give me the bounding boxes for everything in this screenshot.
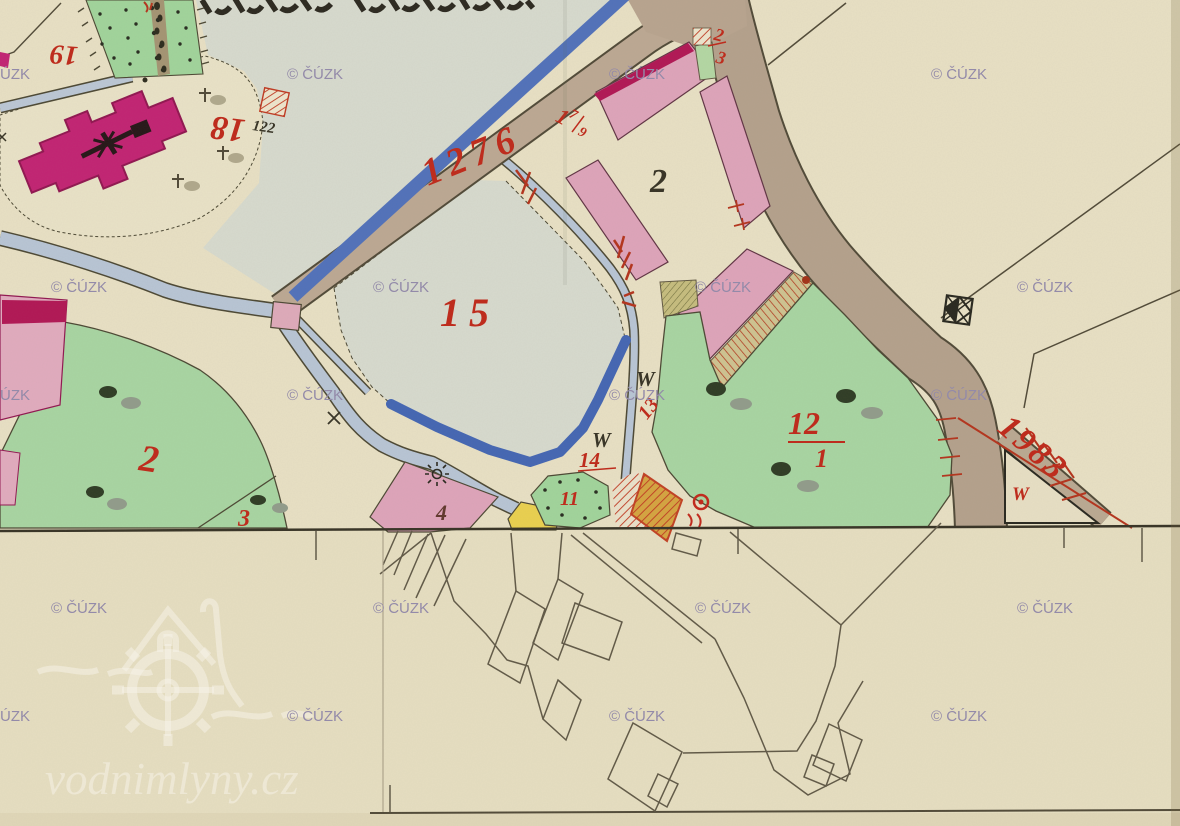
svg-text:© ČÚZK: © ČÚZK xyxy=(51,600,107,617)
svg-text:© ČÚZK: © ČÚZK xyxy=(609,387,665,404)
svg-text:© ČÚZK: © ČÚZK xyxy=(1017,600,1073,617)
svg-text:© ČÚZK: © ČÚZK xyxy=(931,708,987,725)
svg-text:© ČÚZK: © ČÚZK xyxy=(373,279,429,296)
svg-text:© ČÚZK: © ČÚZK xyxy=(931,387,987,404)
svg-text:© ČÚZK: © ČÚZK xyxy=(695,600,751,617)
svg-text:© ČÚZK: © ČÚZK xyxy=(287,387,343,404)
svg-text:© ČÚZK: © ČÚZK xyxy=(695,279,751,296)
svg-text:© ČÚZK: © ČÚZK xyxy=(373,600,429,617)
svg-text:© ČÚZK: © ČÚZK xyxy=(609,66,665,83)
svg-text:© ČÚZK: © ČÚZK xyxy=(0,66,30,83)
svg-text:© ČÚZK: © ČÚZK xyxy=(51,279,107,296)
svg-text:© ČÚZK: © ČÚZK xyxy=(1017,279,1073,296)
svg-text:© ČÚZK: © ČÚZK xyxy=(0,387,30,404)
svg-text:© ČÚZK: © ČÚZK xyxy=(931,66,987,83)
svg-text:vodnimlyny.cz: vodnimlyny.cz xyxy=(45,754,299,804)
svg-text:© ČÚZK: © ČÚZK xyxy=(287,708,343,725)
svg-text:© ČÚZK: © ČÚZK xyxy=(287,66,343,83)
svg-text:© ČÚZK: © ČÚZK xyxy=(0,708,30,725)
svg-text:© ČÚZK: © ČÚZK xyxy=(609,708,665,725)
